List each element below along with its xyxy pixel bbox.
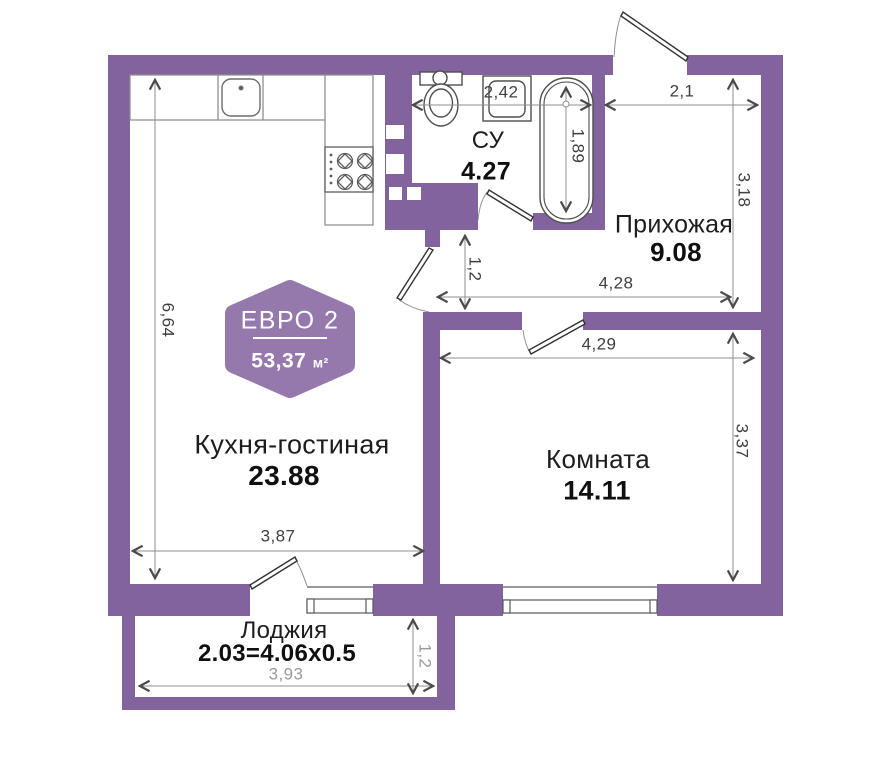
dim-kitchen-width: 3,87 xyxy=(261,528,296,545)
bathroom-area: 4.27 xyxy=(461,160,511,185)
bathroom-door-icon xyxy=(478,190,533,221)
wall-kitchen-bedroom xyxy=(423,312,440,584)
dim-bathtub-length: 1,89 xyxy=(570,129,587,164)
wall-outer-right xyxy=(761,55,783,616)
area-badge xyxy=(233,288,347,390)
wall-bottom-middle xyxy=(373,584,503,616)
wall-bottom-bedroom xyxy=(657,584,783,616)
dim-entry-width: 2,1 xyxy=(670,83,695,100)
kitchen-label: Кухня-гостиная xyxy=(194,432,389,459)
loggia-door-icon xyxy=(250,557,307,589)
dim-hallway-width: 4,28 xyxy=(599,275,634,292)
badge-area-unit: м² xyxy=(313,355,329,371)
bathroom-label: СУ xyxy=(472,129,504,153)
wall-hall-bedroom-right xyxy=(583,312,761,330)
wall-loggia-bottom xyxy=(122,697,455,710)
wall-outer-top xyxy=(108,55,613,75)
loggia-formula: 2.03=4.06х0.5 xyxy=(198,642,356,666)
badge-area-value: 53,37 xyxy=(251,350,306,373)
dim-loggia-depth: 1,2 xyxy=(417,644,434,669)
wall-hall-bedroom-left xyxy=(423,312,522,330)
dim-corridor-width: 1,2 xyxy=(467,257,484,282)
entrance-door-icon xyxy=(614,12,688,61)
stove-icon xyxy=(325,147,373,192)
badge-area: 53,37 м² xyxy=(251,351,328,372)
kitchen-door-icon xyxy=(397,248,433,312)
hallway-area: 9.08 xyxy=(650,239,702,265)
bedroom-door-icon xyxy=(523,320,585,354)
dim-bedroom-width: 4,29 xyxy=(582,336,617,353)
kitchen-loggia-window-icon xyxy=(307,587,373,613)
bedroom-area: 14.11 xyxy=(563,478,631,505)
bedroom-window-icon xyxy=(503,587,657,613)
walls xyxy=(108,55,783,710)
wall-loggia-left xyxy=(122,616,135,710)
bedroom-label: Комната xyxy=(546,446,650,472)
floor-plan-graphics xyxy=(0,0,875,766)
dim-hallway-depth: 3,18 xyxy=(736,173,753,208)
hallway-label: Прихожая xyxy=(615,213,733,238)
dim-bathroom-width: 2,42 xyxy=(484,84,519,101)
badge-title: ЕВРО 2 xyxy=(241,309,340,334)
wall-loggia-right xyxy=(437,616,455,697)
wall-bathroom-right xyxy=(592,75,605,230)
dim-loggia-width: 3,93 xyxy=(269,666,304,683)
floor-plan: ЕВРО 2 53,37 м² СУ 4.27 Прихожая 9.08 Ку… xyxy=(0,0,875,766)
kitchen-area: 23.88 xyxy=(248,462,320,490)
dim-kitchen-depth: 6,64 xyxy=(160,303,177,338)
dim-bedroom-depth: 3,37 xyxy=(734,424,751,459)
wall-outer-left xyxy=(108,55,130,616)
wall-corridor-stub xyxy=(425,230,440,247)
toilet-icon xyxy=(420,71,462,126)
wall-bottom-kitchen xyxy=(108,584,250,616)
